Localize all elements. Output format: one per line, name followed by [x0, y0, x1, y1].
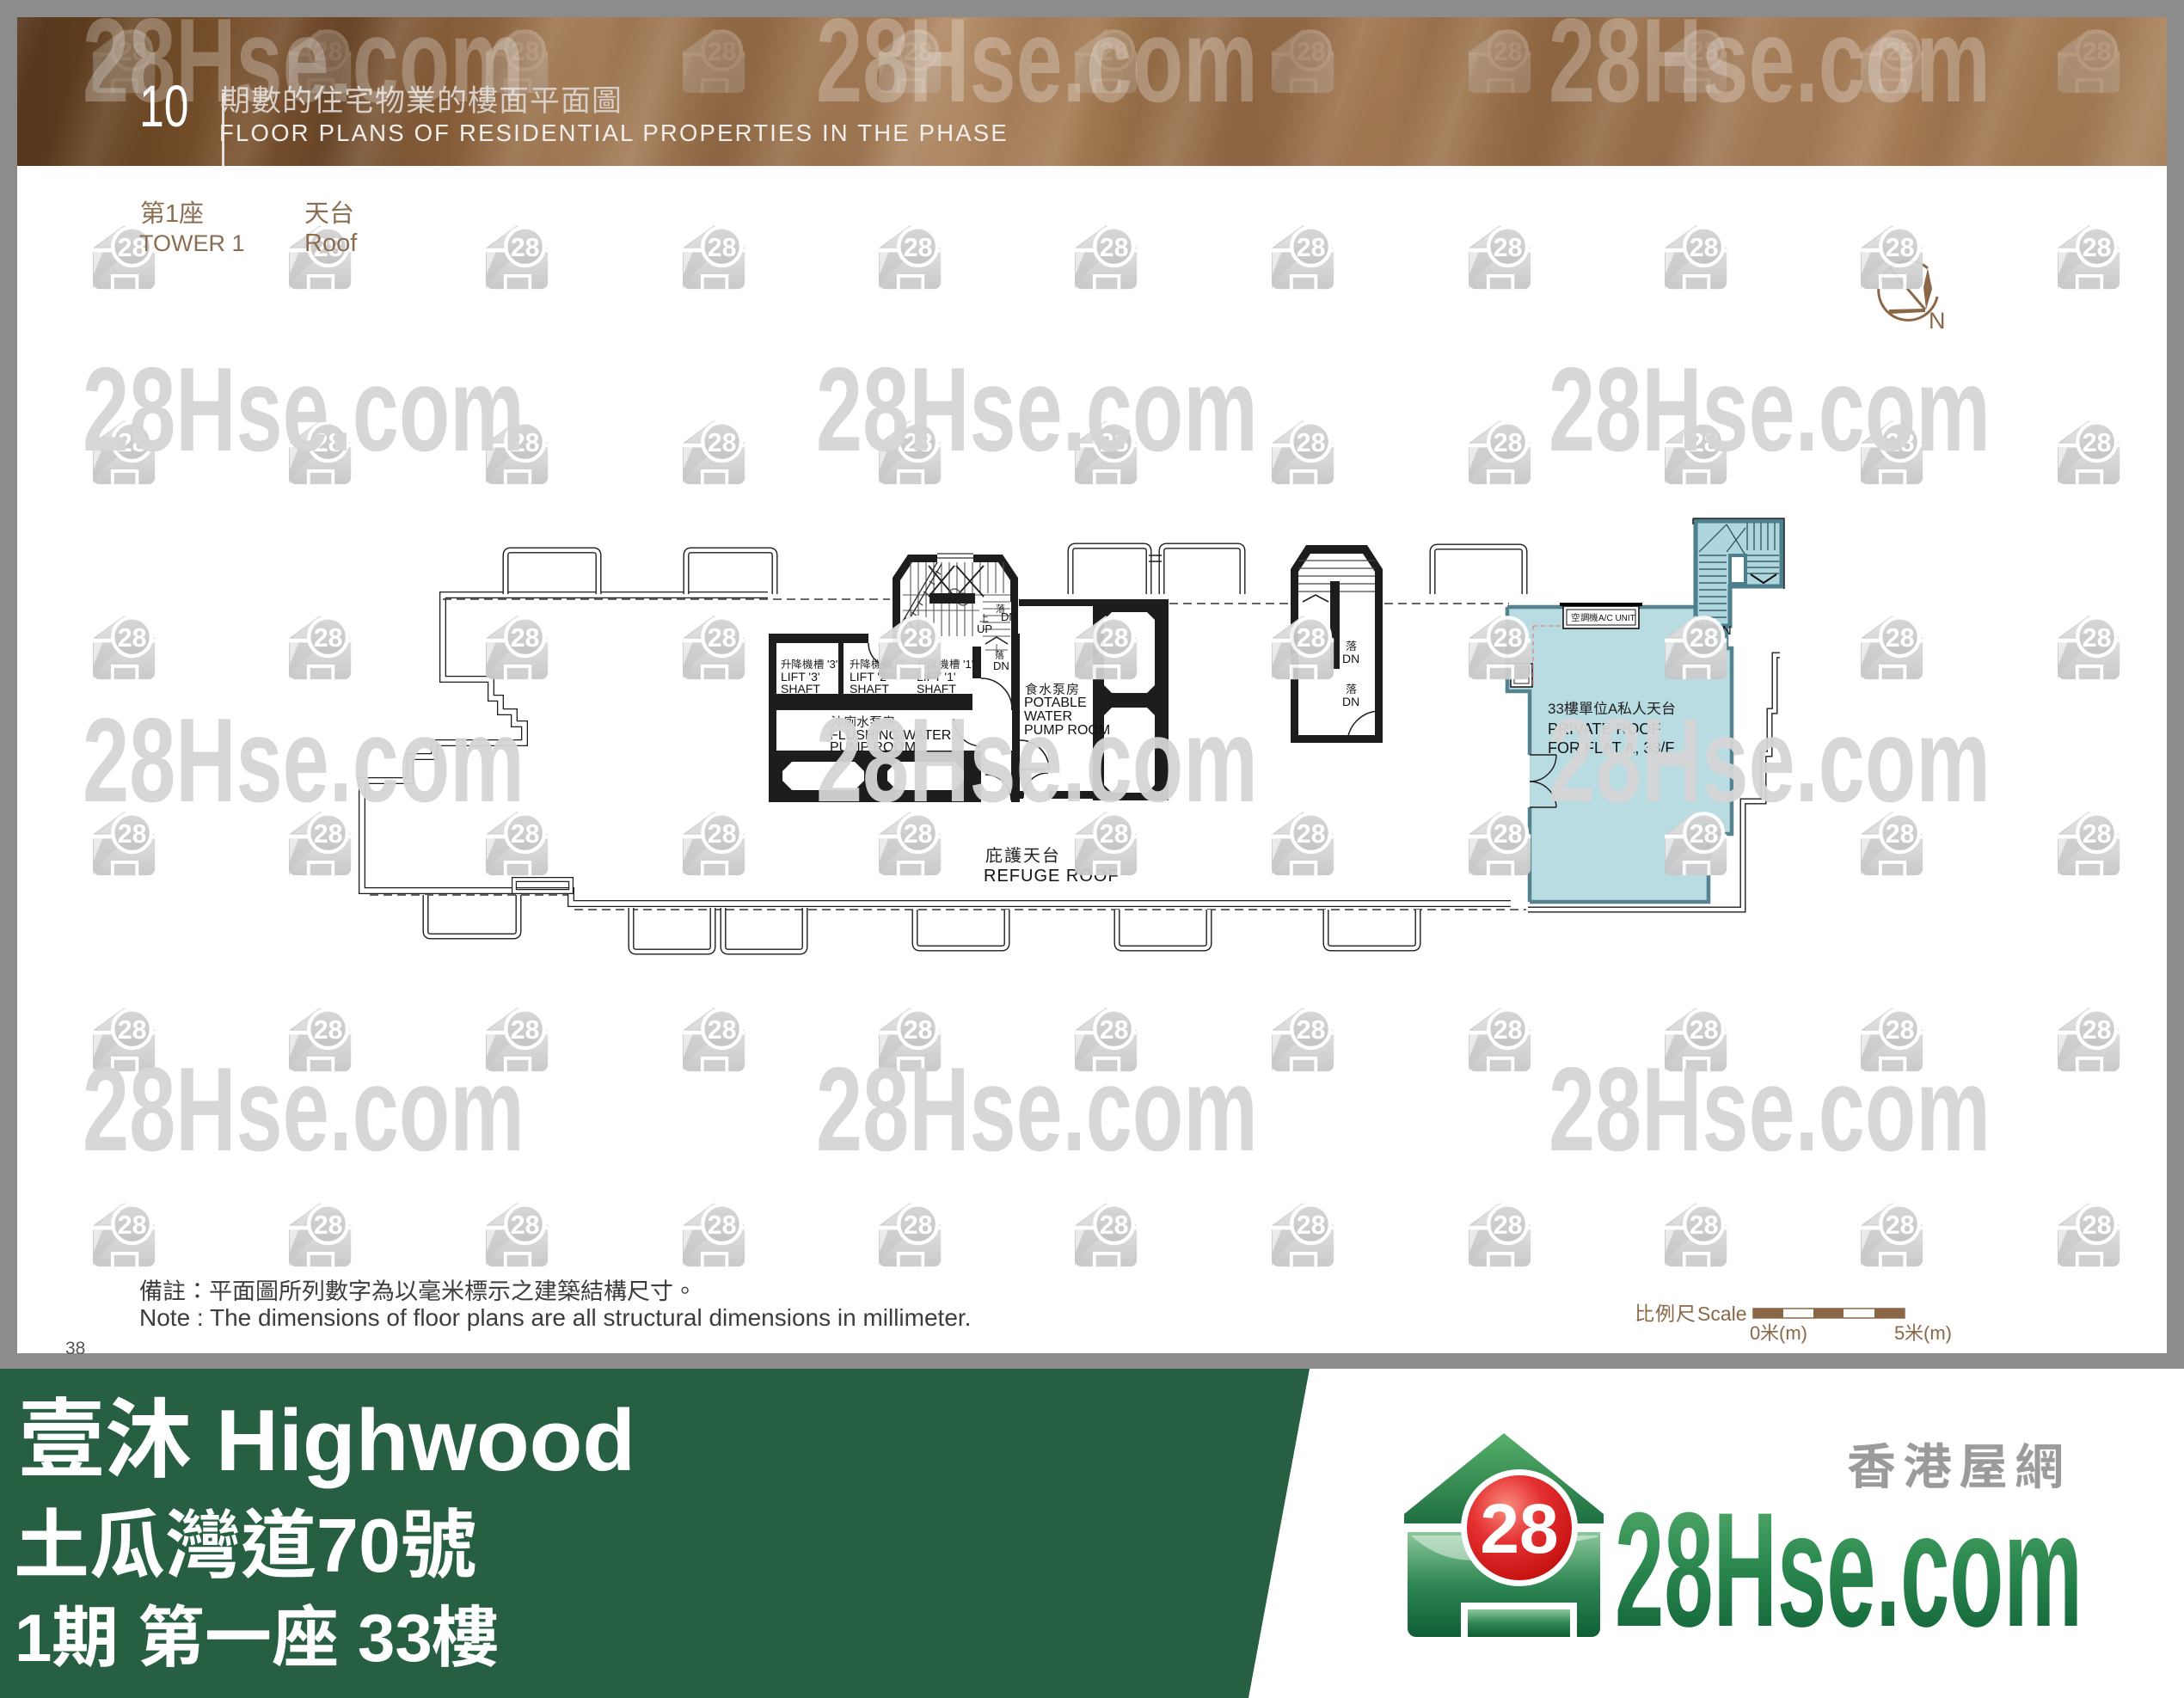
- svg-text:28Hse.com: 28Hse.com: [816, 694, 1258, 827]
- svg-text:28Hse.com: 28Hse.com: [83, 694, 525, 827]
- svg-text:Note : The dimensions of floor: Note : The dimensions of floor plans are…: [139, 1304, 971, 1331]
- svg-text:A/C UNIT: A/C UNIT: [1598, 614, 1635, 623]
- svg-text:DN: DN: [1001, 610, 1017, 623]
- svg-text:28Hse.com: 28Hse.com: [1549, 694, 1991, 827]
- svg-text:1: 1: [165, 200, 179, 228]
- svg-text:(m): (m): [1923, 1322, 1952, 1344]
- svg-text:0: 0: [1750, 1322, 1760, 1344]
- svg-text:28: 28: [1480, 1490, 1558, 1568]
- svg-text:Roof: Roof: [304, 230, 358, 257]
- svg-text:38: 38: [65, 1339, 85, 1358]
- svg-text:TOWER 1: TOWER 1: [139, 230, 245, 256]
- svg-text:'3': '3': [827, 658, 837, 671]
- svg-text:28Hse.com: 28Hse.com: [1549, 0, 1991, 127]
- svg-text:Highwood: Highwood: [216, 1393, 635, 1489]
- svg-text:1: 1: [15, 1600, 52, 1676]
- svg-text:28Hse.com: 28Hse.com: [816, 1043, 1258, 1176]
- svg-text:28Hse.com: 28Hse.com: [1549, 1043, 1991, 1176]
- svg-text:5: 5: [1894, 1322, 1905, 1344]
- svg-text:DN: DN: [1342, 652, 1359, 665]
- svg-text:28Hse.com: 28Hse.com: [83, 0, 525, 127]
- svg-text:SHAFT: SHAFT: [781, 682, 820, 696]
- svg-text:28Hse.com: 28Hse.com: [816, 343, 1258, 476]
- svg-text:DN: DN: [1342, 695, 1359, 708]
- svg-text:'1': '1': [963, 658, 973, 671]
- svg-text:28Hse.com: 28Hse.com: [83, 343, 525, 476]
- svg-text:N: N: [1929, 308, 1946, 334]
- svg-text:70: 70: [316, 1503, 401, 1588]
- svg-text:28Hse.com: 28Hse.com: [1549, 343, 1991, 476]
- svg-text:28Hse.com: 28Hse.com: [1615, 1480, 2083, 1661]
- svg-text:33: 33: [358, 1600, 433, 1676]
- svg-text:UP: UP: [977, 622, 992, 635]
- svg-text:Scale: Scale: [1697, 1303, 1747, 1325]
- svg-text:28Hse.com: 28Hse.com: [816, 0, 1258, 127]
- svg-text:28Hse.com: 28Hse.com: [83, 1043, 525, 1176]
- svg-text:(m): (m): [1779, 1322, 1807, 1344]
- svg-text:DN: DN: [993, 659, 1009, 672]
